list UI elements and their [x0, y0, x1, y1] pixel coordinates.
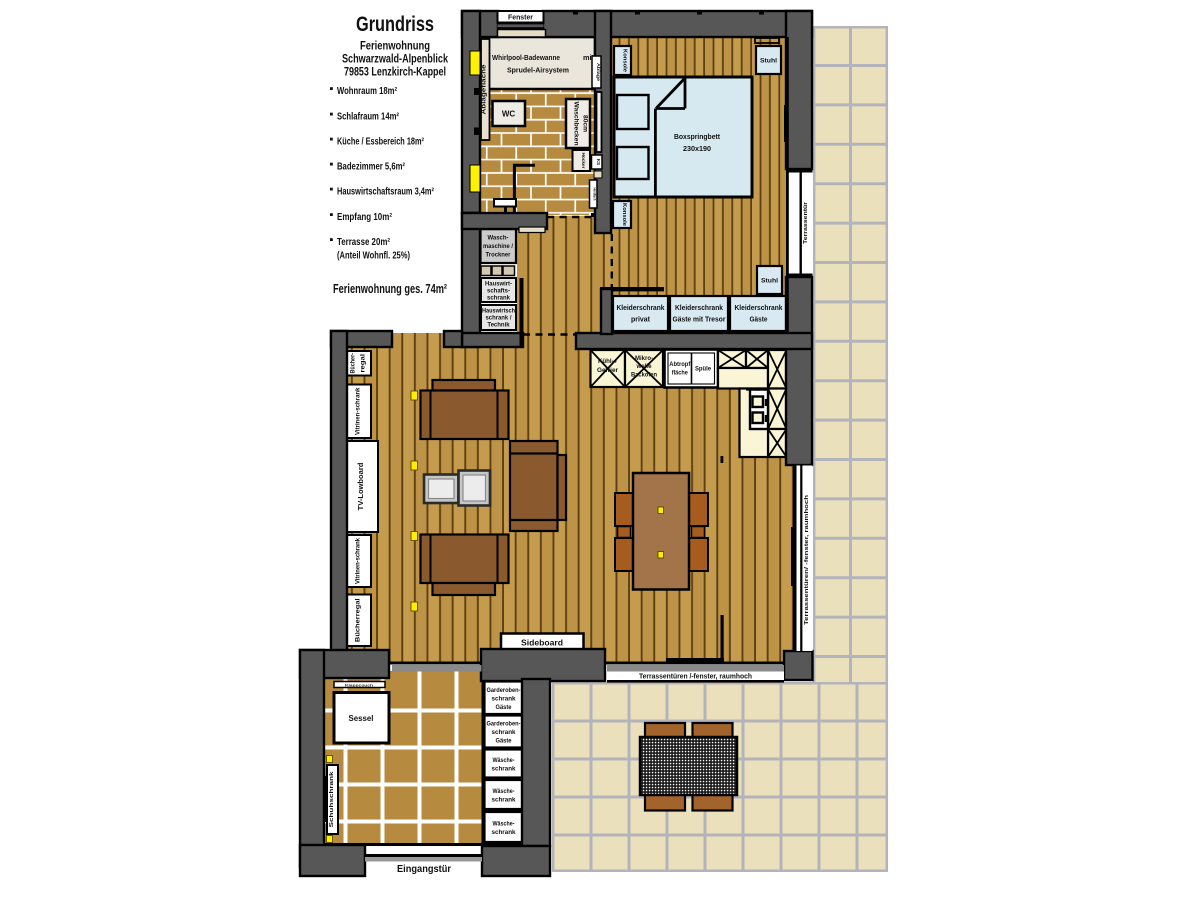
svg-text:Terrassentür: Terrassentür	[803, 201, 809, 244]
svg-text:schrank: schrank	[492, 797, 517, 804]
svg-text:Waschbecken: Waschbecken	[573, 102, 580, 146]
svg-text:Wäsche-: Wäsche-	[493, 788, 515, 795]
svg-text:Hocker: Hocker	[580, 153, 586, 169]
svg-text:230x190: 230x190	[683, 144, 711, 153]
svg-text:Vitrinen-schrank: Vitrinen-schrank	[355, 387, 362, 435]
svg-text:Konsole: Konsole	[621, 203, 627, 226]
svg-text:Wäsche-: Wäsche-	[493, 757, 515, 764]
svg-text:Abtropf: Abtropf	[669, 362, 691, 368]
svg-text:Ablage: Ablage	[595, 63, 601, 81]
svg-text:TV-Lowboard: TV-Lowboard	[358, 463, 365, 511]
svg-text:Gäste: Gäste	[496, 704, 513, 711]
svg-text:Kleiderschrank: Kleiderschrank	[617, 303, 665, 312]
svg-text:schrank: schrank	[492, 695, 517, 702]
svg-text:Kleiderschrank: Kleiderschrank	[735, 303, 783, 312]
svg-text:welle: welle	[636, 363, 652, 370]
svg-text:schrank: schrank	[492, 729, 517, 736]
svg-text:Sessel: Sessel	[349, 714, 374, 723]
svg-text:Kühl- /: Kühl- /	[598, 358, 617, 365]
svg-text:Schwarzwald-Alpenblick: Schwarzwald-Alpenblick	[342, 54, 448, 66]
svg-text:Küche / Essbereich 18m²: Küche / Essbereich 18m²	[337, 137, 425, 148]
svg-text:WC: WC	[502, 110, 516, 119]
svg-text:Terrassentüren/ -fenster, raum: Terrassentüren/ -fenster, raumhoch	[804, 494, 810, 625]
svg-text:Schlafraum 14m²: Schlafraum 14m²	[337, 112, 400, 123]
svg-text:Mikro-: Mikro-	[635, 355, 653, 362]
svg-text:Hauswirtschaftsraum 3,4m²: Hauswirtschaftsraum 3,4m²	[337, 187, 435, 198]
svg-text:Vitrinen-schrank: Vitrinen-schrank	[355, 538, 362, 584]
svg-text:Bücherregal: Bücherregal	[355, 598, 362, 642]
svg-text:Badezimmer 5,6m²: Badezimmer 5,6m²	[337, 162, 406, 173]
svg-text:Grundriss: Grundriss	[356, 12, 434, 36]
svg-text:Gäste mit Tresor: Gäste mit Tresor	[673, 315, 726, 324]
svg-text:Gäste: Gäste	[750, 315, 768, 324]
svg-text:Garderoben-: Garderoben-	[487, 687, 521, 694]
svg-text:Ablagefläche: Ablagefläche	[482, 64, 488, 115]
svg-text:Kleiderschrank: Kleiderschrank	[675, 303, 723, 312]
svg-text:Spüle: Spüle	[695, 367, 712, 373]
svg-text:Eingangstür: Eingangstür	[397, 863, 451, 875]
svg-text:schrank /: schrank /	[486, 316, 512, 322]
svg-text:(Anteil Wohnfl. 25%): (Anteil Wohnfl. 25%)	[337, 251, 410, 262]
svg-text:Trockner: Trockner	[486, 253, 512, 259]
svg-text:Hauswirt-: Hauswirt-	[485, 282, 512, 288]
svg-text:Ferienwohnung ges. 74m²: Ferienwohnung ges. 74m²	[333, 282, 447, 296]
svg-text:Konsole: Konsole	[622, 49, 628, 72]
svg-text:Empfang 10m²: Empfang 10m²	[337, 212, 393, 223]
svg-text:Fenster: Fenster	[508, 13, 533, 22]
svg-text:Sideboard: Sideboard	[521, 639, 563, 648]
svg-text:Boxspringbett: Boxspringbett	[674, 132, 720, 141]
svg-text:Schuhschrank: Schuhschrank	[329, 771, 335, 827]
svg-text:Terrassentüren /-fenster, raum: Terrassentüren /-fenster, raumhoch	[639, 674, 752, 681]
svg-text:Backofen: Backofen	[631, 372, 657, 379]
svg-text:schafts-: schafts-	[487, 289, 510, 295]
svg-text:Gefrier: Gefrier	[597, 367, 619, 374]
svg-text:Terrasse 20m²: Terrasse 20m²	[337, 237, 391, 248]
svg-text:Bücher-: Bücher-	[350, 353, 357, 374]
svg-text:Hauswirtsch: Hauswirtsch	[482, 309, 515, 315]
svg-text:Wohnraum 18m²: Wohnraum 18m²	[337, 86, 398, 97]
svg-text:schrank: schrank	[492, 829, 517, 836]
svg-text:Whirlpool-Badewanne: Whirlpool-Badewanne	[492, 53, 560, 62]
svg-text:Handtuch: Handtuch	[593, 188, 597, 201]
svg-text:Wäsche-: Wäsche-	[493, 821, 515, 828]
svg-text:79853 Lenzkirch-Kappel: 79853 Lenzkirch-Kappel	[344, 67, 446, 79]
svg-text:regal: regal	[359, 354, 366, 373]
svg-text:Stuhl: Stuhl	[761, 278, 778, 285]
svg-text:80cm: 80cm	[582, 115, 589, 133]
svg-text:schrank: schrank	[487, 296, 511, 302]
svg-text:KS: KS	[596, 159, 601, 165]
svg-text:schrank: schrank	[492, 766, 517, 773]
svg-text:fläche: fläche	[672, 371, 689, 377]
svg-text:maschine /: maschine /	[483, 244, 513, 250]
svg-text:Sprudel-Airsystem: Sprudel-Airsystem	[507, 66, 569, 75]
svg-text:Garderoben-: Garderoben-	[487, 721, 521, 728]
svg-text:Ferienwohnung: Ferienwohnung	[360, 41, 430, 53]
svg-text:Gäste: Gäste	[496, 738, 513, 745]
svg-text:privat: privat	[631, 315, 651, 324]
svg-text:Stuhl: Stuhl	[760, 58, 777, 65]
svg-text:Wasch-: Wasch-	[487, 236, 508, 242]
svg-text:Technik: Technik	[487, 323, 510, 329]
svg-text:Klappcouch: Klappcouch	[345, 682, 374, 687]
